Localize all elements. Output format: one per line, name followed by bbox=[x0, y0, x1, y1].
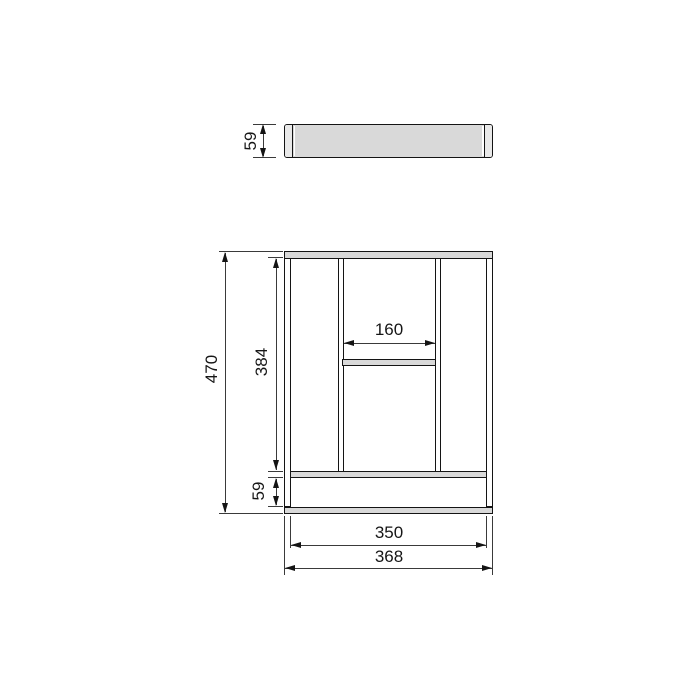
dim-inner-length-ext-bottom1 bbox=[268, 471, 283, 472]
dim-inner-length-arrow-down bbox=[273, 460, 279, 470]
side-view-left-gap bbox=[294, 126, 296, 156]
dim-overall-width-arrow-left bbox=[285, 565, 295, 571]
dim-inner-width-arrow-right bbox=[476, 542, 486, 548]
dim-inner-length-arrow-up bbox=[273, 258, 279, 268]
dim-side-thickness-arrow-up bbox=[260, 124, 266, 134]
plan-top-rail bbox=[284, 251, 493, 259]
dim-front-depth-arrow-up bbox=[273, 478, 279, 488]
dim-inner-width-label: 350 bbox=[359, 524, 419, 542]
dim-inner-width-line bbox=[291, 545, 486, 546]
dim-overall-width-arrow-right bbox=[482, 565, 492, 571]
dim-overall-length-line bbox=[225, 253, 226, 512]
side-view-right-endcap bbox=[484, 125, 492, 157]
plan-center-compartment-divider bbox=[342, 359, 436, 366]
dim-side-thickness-arrow-down bbox=[260, 148, 266, 158]
plan-front-divider bbox=[290, 471, 487, 478]
dim-center-width-label: 160 bbox=[364, 321, 414, 339]
dim-front-depth-label: 59 bbox=[250, 473, 268, 509]
plan-bottom-rail bbox=[284, 507, 493, 515]
dim-front-depth-arrow-down bbox=[273, 496, 279, 506]
dim-overall-length-label: 470 bbox=[203, 347, 221, 391]
dim-center-width-arrow-right bbox=[425, 340, 435, 346]
side-view-left-endcap bbox=[285, 125, 293, 157]
side-view-body bbox=[284, 124, 493, 158]
dim-inner-length-label: 384 bbox=[253, 340, 271, 384]
technical-drawing-canvas: 59 470 384 59 160 350 368 bbox=[0, 0, 700, 700]
dim-overall-length-arrow-up bbox=[222, 252, 228, 262]
dim-overall-length-ext-bottom bbox=[219, 513, 283, 514]
dim-overall-length-arrow-down bbox=[222, 503, 228, 513]
dim-center-width-line bbox=[344, 343, 435, 344]
dim-center-width-arrow-left bbox=[344, 340, 354, 346]
dim-inner-width-arrow-left bbox=[291, 542, 301, 548]
dim-side-thickness-label: 59 bbox=[242, 121, 260, 161]
dim-overall-width-ext-right bbox=[492, 516, 493, 575]
dim-overall-width-line bbox=[285, 568, 492, 569]
dim-inner-width-ext-right bbox=[486, 516, 487, 548]
dim-overall-length-ext-top bbox=[219, 251, 283, 252]
dim-inner-length-line bbox=[276, 259, 277, 470]
dim-front-depth-ext-bottom bbox=[268, 506, 283, 507]
dim-overall-width-label: 368 bbox=[359, 548, 419, 566]
side-view-right-gap bbox=[482, 126, 484, 156]
plan-left-wall bbox=[284, 258, 291, 507]
plan-right-wall bbox=[486, 258, 493, 507]
